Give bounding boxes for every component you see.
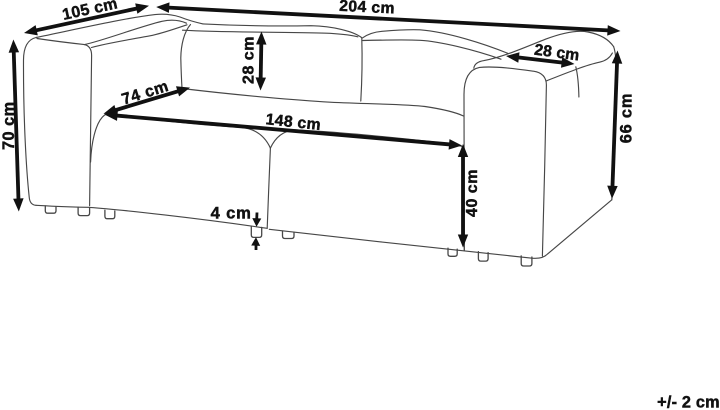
- svg-text:28 cm: 28 cm: [241, 36, 258, 84]
- svg-text:204 cm: 204 cm: [339, 0, 395, 17]
- svg-text:+/- 2 cm: +/- 2 cm: [657, 393, 720, 410]
- svg-text:66 cm: 66 cm: [618, 93, 636, 143]
- svg-text:4 cm: 4 cm: [211, 204, 252, 223]
- svg-text:70 cm: 70 cm: [0, 101, 18, 150]
- svg-text:40 cm: 40 cm: [464, 169, 481, 217]
